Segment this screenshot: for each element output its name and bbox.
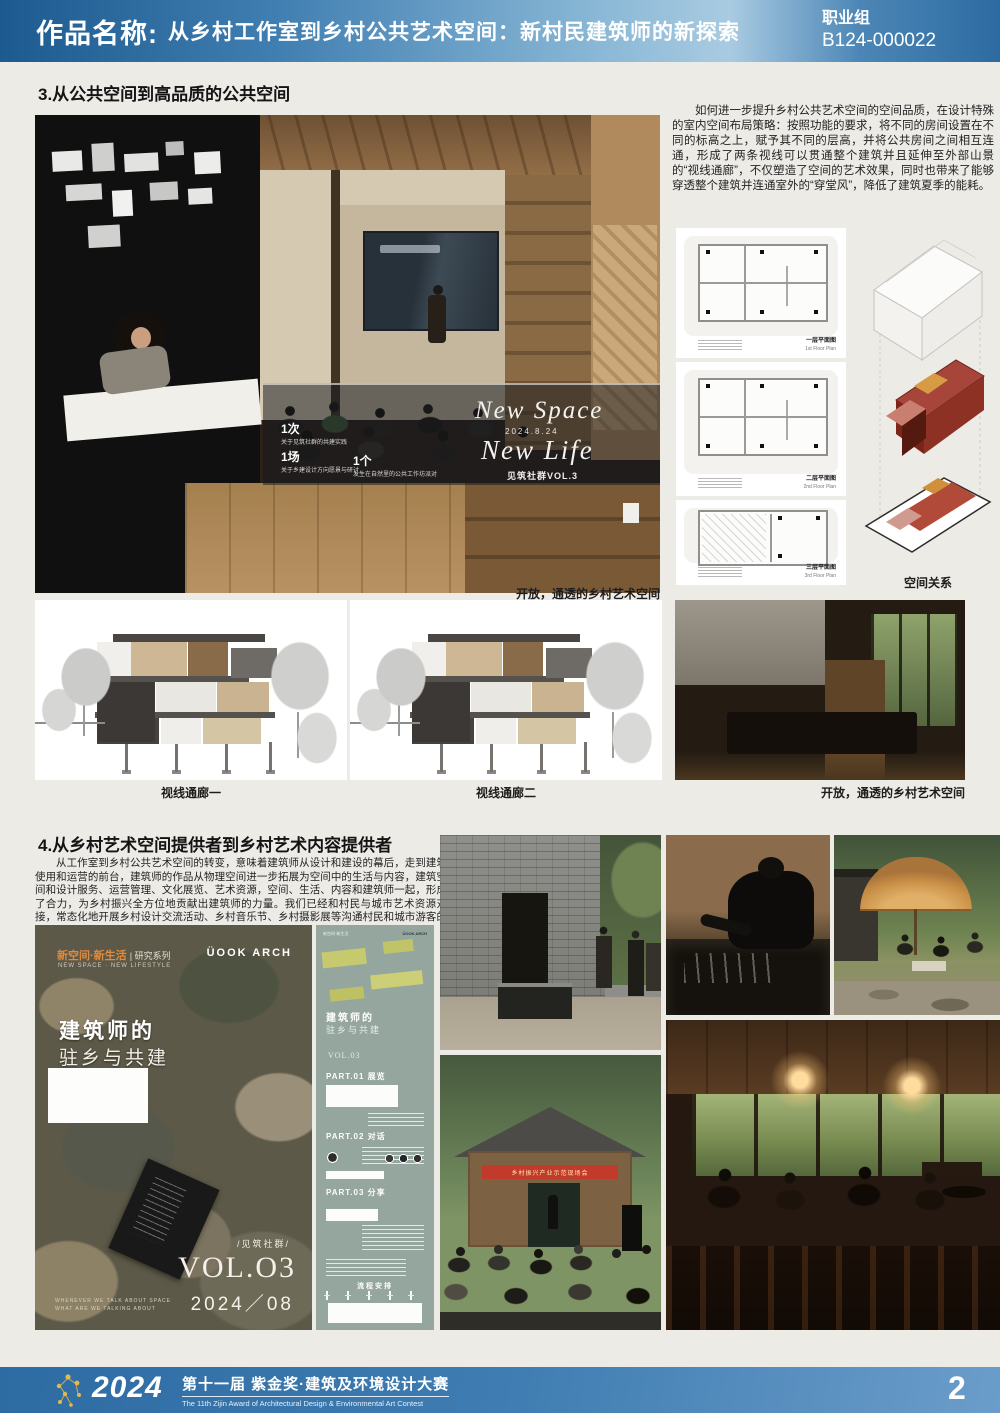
speaker-figure xyxy=(548,1195,558,1229)
craftsman-body xyxy=(728,871,814,949)
audience-crowd xyxy=(440,1241,661,1330)
section-drawing-art xyxy=(350,600,662,780)
plan-walls xyxy=(700,246,826,320)
booklet-text-lines xyxy=(131,1177,186,1246)
interior-photo-caption: 开放，通透的乡村艺术空间 xyxy=(705,784,965,801)
booklet-tagline: 新空间·新生活 | 研究系列 xyxy=(57,947,171,963)
small-text-block xyxy=(362,1225,424,1251)
main-photo-art-space: 1次 关于见筑社群的共建实践 1场 关于乡建设计方向愿景与研讨 1个 发生在自然… xyxy=(35,115,660,593)
section-drawing-2-caption: 视线通廊二 xyxy=(350,784,662,801)
house-roof xyxy=(454,1107,646,1157)
axon-svg xyxy=(856,228,1000,572)
section-drawing-1 xyxy=(35,600,347,780)
craftsman-head xyxy=(758,857,784,879)
stone-path xyxy=(834,981,1000,1015)
small-label-card xyxy=(623,503,639,523)
contest-title: 第十一届 紫金奖·建筑及环境设计大赛 xyxy=(182,1373,449,1397)
dark-table xyxy=(727,712,917,754)
glass-stat-1: 1次 关于见筑社群的共建实践 xyxy=(281,423,347,446)
glass-title-new-life: New Life xyxy=(481,435,594,466)
work-title: 从乡村工作室到乡村公共艺术空间：新村民建筑师的新探索 xyxy=(168,16,740,46)
page-number: 2 xyxy=(948,1370,966,1407)
craftsman-photo xyxy=(666,835,830,1015)
section-drawing-1-caption: 视线通廊一 xyxy=(35,784,347,801)
event-pamphlet: 新空间·新生活 ÜOOK ARCH 建筑师的 驻乡与共建 VOL.03 PART… xyxy=(316,925,434,1330)
booklet-footnote: WHENEVER WE TALK ABOUT SPACE WHAT ARE WE… xyxy=(55,1297,171,1313)
interior-photo xyxy=(675,600,965,780)
screen-highlight xyxy=(380,245,440,253)
booklet-date: 2024／08 xyxy=(191,1289,294,1316)
footer-year: 2024 xyxy=(92,1371,163,1405)
poster-page: 作品名称: 从乡村工作室到乡村公共艺术空间：新村民建筑师的新探索 职业组 B12… xyxy=(0,0,1000,1413)
glass-railing: 1次 关于见筑社群的共建实践 1场 关于乡建设计方向愿景与研讨 1个 发生在自然… xyxy=(263,383,660,485)
image-placeholder xyxy=(326,1085,398,1107)
uook-arch-logo: ÜOOK ARCH xyxy=(207,947,292,959)
person-leaning-face xyxy=(131,327,151,349)
presenter-figure xyxy=(433,285,443,295)
people-silhouettes xyxy=(686,1160,986,1252)
plan-label: 三层平面图 3rd Floor Plan xyxy=(805,565,836,579)
small-text-block xyxy=(326,1259,406,1277)
glass-stat-2: 1场 关于乡建设计方向愿景与研讨 xyxy=(281,451,359,474)
wood-cabinet xyxy=(465,483,660,593)
booklet-volume: VOL.O3 xyxy=(178,1251,296,1285)
white-bar xyxy=(326,1171,384,1179)
umbrella-canopy xyxy=(860,857,972,911)
pamphlet-part-1: PART.01 展览 xyxy=(326,1071,386,1082)
entry-number: B124-000022 xyxy=(822,29,936,53)
book-table xyxy=(498,983,572,1019)
work-title-row: 作品名称: 从乡村工作室到乡村公共艺术空间：新村民建筑师的新探索 xyxy=(36,0,740,62)
plan-drawing xyxy=(698,244,828,322)
axon-caption: 空间关系 xyxy=(856,574,1000,591)
dark-counter xyxy=(666,1246,1000,1330)
village-event-photo: 乡村振兴产业示范现场会 xyxy=(440,1055,661,1330)
booklet-cover: 新空间·新生活 | 研究系列 NEW SPACE · NEW LIFESTYLE… xyxy=(35,925,312,1330)
red-banner: 乡村振兴产业示范现场会 xyxy=(482,1165,618,1179)
hat-figure xyxy=(942,1186,986,1198)
footer-bar: 2024 第十一届 紫金奖·建筑及环境设计大赛 The 11th Zijin A… xyxy=(0,1367,1000,1413)
seated-people xyxy=(884,931,1000,981)
white-box xyxy=(326,1209,378,1221)
plan-drawing xyxy=(698,510,828,566)
warm-interior-photo xyxy=(666,1020,1000,1330)
floor-plan-card-3: 三层平面图 3rd Floor Plan xyxy=(676,500,846,585)
pamphlet-volume: VOL.03 xyxy=(328,1051,360,1060)
section-drawing-art xyxy=(35,600,347,780)
plan-legend xyxy=(698,478,742,488)
booklet-title-1: 建筑师的 xyxy=(59,1015,155,1045)
section3-heading: 3.从公共空间到高品质的公共空间 xyxy=(38,80,290,105)
schedule-timeline xyxy=(324,1291,426,1300)
pamphlet-title-1: 建筑师的 xyxy=(326,1009,374,1024)
plan-walls xyxy=(700,380,826,454)
small-text-block xyxy=(368,1113,424,1126)
section-drawing-2 xyxy=(350,600,662,780)
speaker-avatars xyxy=(326,1151,424,1165)
bottom-white-box xyxy=(328,1303,422,1323)
plan-label: 一层平面图 1st Floor Plan xyxy=(805,338,836,352)
wood-ceiling xyxy=(666,1020,1000,1094)
outdoor-tea-photo xyxy=(834,835,1000,1015)
work-title-label: 作品名称: xyxy=(36,12,158,51)
header-bar: 作品名称: 从乡村工作室到乡村公共艺术空间：新村民建筑师的新探索 职业组 B12… xyxy=(0,0,1000,62)
abstract-shapes xyxy=(319,936,431,1013)
visitor-silhouettes xyxy=(590,923,661,1023)
stone-building-photo xyxy=(440,835,661,1050)
zijin-award-logo-icon xyxy=(50,1372,86,1413)
pamphlet-schedule: 流程安排 xyxy=(316,1281,434,1291)
section3-paragraph: 如何进一步提升乡村公共艺术空间的空间品质，在设计特殊的室内空间布局策略：按照功能… xyxy=(672,104,994,194)
section4-heading: 4.从乡村艺术空间提供者到乡村艺术内容提供者 xyxy=(38,831,392,856)
entry-group: 职业组 xyxy=(822,9,936,29)
booklet-title-2: 驻乡与共建 xyxy=(59,1043,169,1070)
plan-walls xyxy=(700,512,826,564)
pamphlet-title-2: 驻乡与共建 xyxy=(326,1023,381,1036)
contest-title-en: The 11th Zijin Award of Architectural De… xyxy=(182,1399,449,1408)
artwork-collage xyxy=(43,132,251,292)
floor-plan-card-2: 二层平面图 2nd Floor Plan xyxy=(676,362,846,496)
glass-series-label: 见筑社群VOL.3 xyxy=(507,469,578,482)
pamphlet-part-2: PART.02 对话 xyxy=(326,1131,386,1142)
pendant-lamp xyxy=(770,1050,830,1110)
presenter-body xyxy=(428,295,446,343)
plan-legend xyxy=(698,340,742,350)
ink-marks xyxy=(684,953,776,983)
dark-doorway xyxy=(502,893,548,997)
pendant-lamp xyxy=(882,1056,942,1116)
entry-info: 职业组 B124-000022 xyxy=(822,9,936,53)
glass-title-new-space: New Space xyxy=(475,397,603,425)
pamphlet-part-3: PART.03 分享 xyxy=(326,1187,386,1198)
axonometric-diagram xyxy=(856,228,1000,572)
blank-card xyxy=(48,1068,148,1123)
booklet-tagline-en: NEW SPACE · NEW LIFESTYLE xyxy=(58,963,171,969)
floor-plan-card-1: 一层平面图 1st Floor Plan xyxy=(676,228,846,358)
plan-label: 二层平面图 2nd Floor Plan xyxy=(803,476,836,490)
glass-stat-3: 1个 发生在自然里的公共工作坊派对 xyxy=(353,455,437,478)
footer-title-block: 第十一届 紫金奖·建筑及环境设计大赛 The 11th Zijin Award … xyxy=(182,1373,449,1408)
plan-legend xyxy=(698,567,742,577)
floor-glow xyxy=(675,752,965,780)
concrete-wall xyxy=(675,600,825,685)
booklet-series: /见筑社群/ xyxy=(237,1237,290,1250)
plan-drawing xyxy=(698,378,828,456)
